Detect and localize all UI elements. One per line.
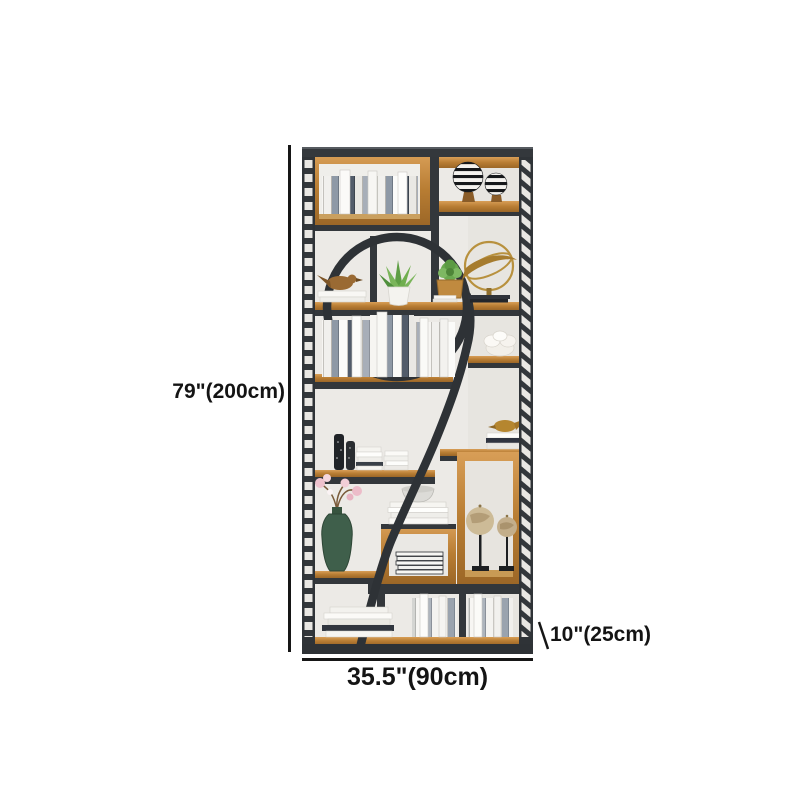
bottom-right-books xyxy=(468,594,513,637)
books-top-box xyxy=(322,170,418,214)
flat-books-arch xyxy=(433,296,457,303)
globes-box xyxy=(457,452,521,584)
height-dimension-label: 79"(200cm) xyxy=(70,380,285,404)
product-image: 79"(200cm) 35.5"(90cm) 10"(25cm) xyxy=(0,0,800,800)
top-book-box xyxy=(302,147,437,231)
bottom-center-books xyxy=(412,594,457,637)
bottom-left-book-stack xyxy=(322,607,394,637)
width-dimension-label: 35.5"(90cm) xyxy=(302,663,533,692)
striped-books xyxy=(396,552,443,574)
depth-dimension-label: 10"(25cm) xyxy=(550,623,651,647)
depth-dimension-line xyxy=(539,622,548,649)
